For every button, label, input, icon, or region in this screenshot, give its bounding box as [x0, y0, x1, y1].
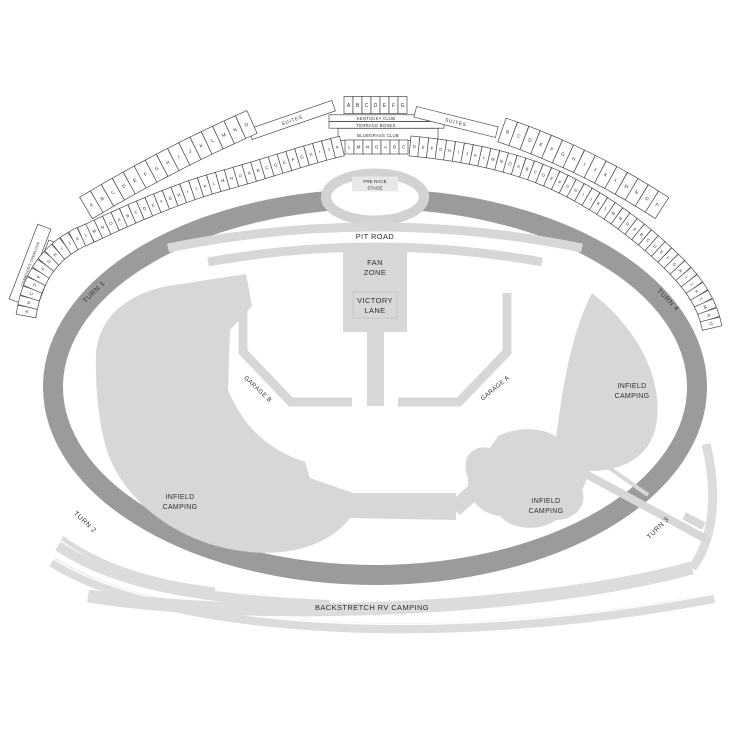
seat-section-top-boxes-2-C[interactable]: C: [362, 97, 371, 114]
seat-section-center-row-0-L[interactable]: L: [345, 140, 354, 154]
kentucky-club-label: KENTUCKY CLUB: [357, 116, 396, 121]
fan-zone-label: ZONE: [364, 268, 386, 277]
suites-band-left[interactable]: SUITES: [249, 100, 336, 139]
seat-section-top-boxes-1-B[interactable]: B: [353, 97, 362, 114]
seat-section-top-boxes-4-E[interactable]: E: [380, 97, 389, 114]
victory-lane-label: VICTORY: [357, 296, 393, 305]
seat-section-letter: D: [374, 103, 378, 109]
turn3-label-group: TURN 3: [646, 516, 671, 541]
seat-section-top-boxes-5-F[interactable]: F: [389, 97, 398, 114]
backstretch-rv-camping-label: BACKSTRETCH RV CAMPING: [315, 603, 429, 612]
seat-section-top-boxes-3-D[interactable]: D: [371, 97, 380, 114]
infield-camping-center-label: INFIELD: [532, 498, 561, 505]
turn3-label: TURN 3: [646, 516, 671, 541]
seat-section-letter: G: [439, 147, 443, 152]
outer-road: [692, 444, 713, 568]
speedway-map: PRE RACE STAGE SUITES: [0, 0, 750, 750]
victory-lane-label: LANE: [364, 306, 385, 315]
seat-section-center-row-5-B[interactable]: B: [390, 140, 399, 154]
seat-section-top-boxes-0-A[interactable]: A: [344, 97, 353, 114]
infield-camping-left-label: CAMPING: [163, 504, 198, 511]
bluegrass-club-label: BLUEGRASS CLUB: [357, 133, 399, 138]
fan-zone-label: FAN: [367, 258, 383, 267]
seat-section-center-row-2-N[interactable]: N: [363, 140, 372, 154]
seat-section-letter: N: [366, 145, 369, 150]
infield-camping-right-label: CAMPING: [615, 393, 650, 400]
turn2-label: TURN 2: [72, 510, 97, 534]
seat-section-letter: B: [393, 145, 396, 150]
victory-lane-stem: [367, 330, 384, 406]
seat-section-letter: O: [375, 145, 379, 150]
seat-section-center-row-1-M[interactable]: M: [354, 140, 363, 154]
seat-section-center-row-3-O[interactable]: O: [372, 140, 381, 154]
terrace-boxes-label: TERRACE BOXES: [356, 123, 395, 128]
pit-road-label: PIT ROAD: [356, 232, 395, 241]
infield-camping-center-label: CAMPING: [529, 508, 564, 515]
seat-section-letter: D: [413, 144, 416, 149]
seat-section-top-boxes-6-G[interactable]: G: [398, 97, 407, 114]
seat-section-letter: L: [348, 145, 351, 150]
pre-race-stage-label: PRE RACE: [363, 179, 387, 184]
speedway-map-svg: PRE RACE STAGE SUITES: [0, 0, 750, 750]
seat-section-letter: F: [392, 103, 395, 109]
seat-section-center-row-6-C[interactable]: C: [399, 140, 408, 154]
infield-camping-right-label: INFIELD: [618, 383, 647, 390]
seat-section-letter: C: [365, 103, 369, 109]
garage-a-area[interactable]: [398, 293, 507, 402]
infield-camping-left-label: INFIELD: [166, 494, 195, 501]
seat-section-letter: M: [357, 145, 361, 150]
seat-section-center-row-4-A[interactable]: A: [381, 140, 390, 154]
seat-section-letter: G: [401, 103, 405, 109]
pre-race-stage: PRE RACE STAGE: [321, 168, 429, 226]
turn2-label-group: TURN 2: [72, 510, 97, 534]
pre-race-stage-label: STAGE: [367, 186, 382, 191]
